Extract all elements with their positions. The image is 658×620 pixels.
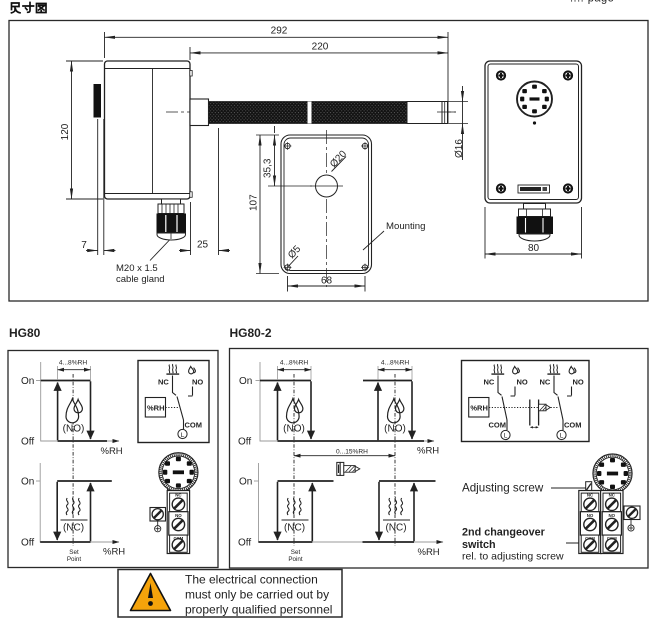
svg-text:7: 7 [81,240,87,251]
svg-text:Off: Off [238,437,251,448]
svg-text:L: L [181,432,185,439]
svg-text:0...15%RH: 0...15%RH [336,449,368,456]
svg-text:25: 25 [197,240,209,251]
svg-text:(NC): (NC) [63,523,84,534]
svg-text:.... page: .... page [570,0,614,5]
svg-text:120: 120 [60,123,71,140]
svg-text:%RH: %RH [417,446,439,457]
svg-text:Point: Point [67,556,82,563]
svg-text:(NC): (NC) [385,523,406,534]
svg-text:(NO): (NO) [63,424,85,435]
svg-text:On: On [239,477,252,488]
svg-text:(NC): (NC) [284,523,305,534]
svg-text:COM: COM [185,421,203,430]
svg-text:107: 107 [249,194,260,211]
svg-text:%RH: %RH [418,547,440,558]
svg-text:NO: NO [573,378,584,387]
svg-text:rel. to adjusting screw: rel. to adjusting screw [462,551,564,563]
svg-text:COM: COM [489,421,507,430]
svg-text:L: L [504,433,508,440]
svg-text:Ø16: Ø16 [454,139,465,158]
svg-text:The electrical connection: The electrical connection [185,573,318,587]
svg-text:Off: Off [21,538,34,549]
svg-text:Off: Off [21,437,34,448]
svg-text:switch: switch [462,539,496,551]
svg-text:4...8%RH: 4...8%RH [280,360,308,367]
svg-text:Adjusting screw: Adjusting screw [462,482,544,495]
svg-text:292: 292 [271,26,288,37]
svg-text:NO: NO [517,378,528,387]
svg-text:80: 80 [528,243,540,254]
svg-text:On: On [239,376,252,387]
svg-text:NC: NC [158,378,169,387]
svg-text:HG80: HG80 [9,326,41,340]
svg-text:220: 220 [312,42,329,53]
svg-text:Mounting: Mounting [386,221,425,232]
svg-text:Set: Set [291,549,301,556]
svg-text:%RH: %RH [101,446,123,457]
svg-text:L: L [560,433,564,440]
svg-text:properly qualified personnel: properly qualified personnel [185,603,332,617]
svg-text:Off: Off [238,538,251,549]
svg-text:%RH: %RH [147,404,165,413]
svg-text:2nd changeover: 2nd changeover [462,527,546,539]
svg-text:NO: NO [192,378,203,387]
svg-text:%RH: %RH [103,547,125,558]
svg-text:Set: Set [69,549,79,556]
svg-text:4...8%RH: 4...8%RH [59,360,87,367]
svg-text:Point: Point [288,556,303,563]
svg-text:NC: NC [484,378,495,387]
svg-text:On: On [21,477,34,488]
svg-text:must only be carried out by: must only be carried out by [185,588,329,602]
svg-text:%RH: %RH [470,404,488,413]
svg-text:4...8%RH: 4...8%RH [381,360,409,367]
svg-text:M20 x 1.5: M20 x 1.5 [116,263,158,274]
svg-text:cable gland: cable gland [116,274,165,285]
svg-text:On: On [21,376,34,387]
svg-text:COM: COM [564,421,582,430]
svg-text:HG80-2: HG80-2 [230,326,272,340]
svg-text:68: 68 [321,276,333,287]
svg-text:35,3: 35,3 [263,158,274,178]
svg-text:NC: NC [540,378,551,387]
